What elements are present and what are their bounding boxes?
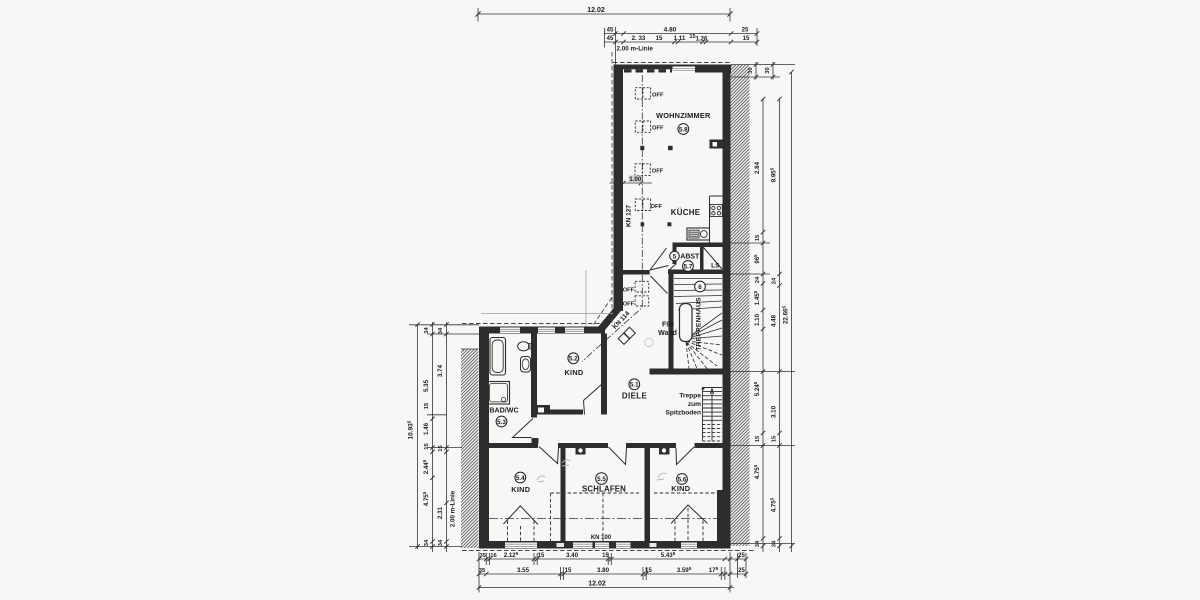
svg-text:SCHLAFEN: SCHLAFEN	[582, 484, 626, 493]
svg-text:3.40: 3.40	[566, 552, 579, 559]
svg-text:34: 34	[755, 540, 761, 547]
svg-text:3.80: 3.80	[597, 567, 610, 574]
svg-text:DIELE: DIELE	[622, 391, 647, 400]
svg-text:KN 100: KN 100	[591, 535, 612, 541]
svg-text:4.48: 4.48	[771, 314, 778, 327]
svg-text:1.46: 1.46	[423, 422, 430, 435]
svg-text:OFF: OFF	[651, 204, 663, 210]
svg-text:2.31: 2.31	[437, 506, 444, 519]
svg-text:35: 35	[479, 568, 486, 574]
svg-text:OFF: OFF	[652, 126, 664, 132]
svg-text:OFF: OFF	[623, 301, 635, 307]
svg-text:5.8: 5.8	[679, 126, 688, 133]
svg-text:15: 15	[424, 443, 430, 450]
svg-text:KÜCHE: KÜCHE	[671, 208, 701, 217]
svg-text:24: 24	[772, 277, 778, 284]
svg-text:34: 34	[424, 327, 430, 334]
svg-text:1.11: 1.11	[674, 35, 686, 42]
svg-text:Treppe: Treppe	[679, 393, 701, 400]
svg-text:2. 33: 2. 33	[632, 35, 646, 42]
svg-text:30: 30	[748, 67, 754, 73]
svg-text:Spitzboden: Spitzboden	[665, 410, 701, 417]
svg-text:F90: F90	[662, 321, 674, 328]
svg-text:1.10: 1.10	[754, 313, 761, 326]
svg-text:KN 127: KN 127	[626, 205, 633, 227]
svg-text:15: 15	[565, 568, 572, 574]
svg-text:15: 15	[424, 402, 430, 409]
svg-text:3.74: 3.74	[437, 364, 444, 377]
svg-text:15: 15	[755, 234, 761, 241]
svg-text:5.4: 5.4	[516, 475, 525, 482]
svg-text:5.35: 5.35	[423, 379, 430, 392]
svg-text:15: 15	[645, 568, 652, 574]
svg-text:45: 45	[607, 36, 614, 42]
svg-text:25: 25	[742, 28, 749, 34]
svg-text:5.2: 5.2	[569, 356, 578, 363]
svg-text:5: 5	[673, 253, 677, 260]
svg-text:15: 15	[538, 553, 545, 559]
svg-text:5.6: 5.6	[678, 476, 687, 483]
svg-text:35: 35	[479, 553, 486, 559]
svg-text:5.5: 5.5	[597, 476, 606, 483]
svg-text:4.80: 4.80	[664, 26, 677, 33]
svg-text:15: 15	[755, 435, 761, 442]
svg-text:OFF: OFF	[652, 92, 664, 98]
svg-text:5.3: 5.3	[497, 419, 506, 426]
svg-text:24: 24	[755, 276, 761, 283]
svg-text:KIND: KIND	[511, 485, 530, 494]
svg-text:Wand: Wand	[658, 330, 677, 337]
svg-text:KIND: KIND	[671, 484, 690, 493]
svg-text:TREPPENHAUS: TREPPENHAUS	[696, 297, 703, 351]
svg-text:ABST: ABST	[680, 253, 700, 260]
svg-text:5.1: 5.1	[630, 382, 639, 389]
svg-text:25: 25	[738, 568, 745, 574]
svg-text:2.00 m-Linie: 2.00 m-Linie	[450, 490, 457, 527]
svg-text:OFF: OFF	[652, 169, 664, 175]
svg-text:OFF: OFF	[623, 287, 635, 293]
svg-text:34: 34	[772, 540, 778, 547]
svg-text:15: 15	[438, 445, 444, 452]
svg-text:15: 15	[656, 36, 663, 42]
svg-text:12.02: 12.02	[587, 7, 605, 14]
svg-text:3.10: 3.10	[771, 405, 778, 418]
svg-text:15: 15	[743, 36, 750, 42]
svg-text:15: 15	[602, 553, 609, 559]
svg-text:30: 30	[765, 67, 771, 73]
svg-text:WOHNZIMMER: WOHNZIMMER	[656, 111, 711, 120]
svg-text:1.00: 1.00	[629, 176, 642, 183]
svg-text:34: 34	[438, 327, 444, 334]
svg-text:3.55: 3.55	[517, 567, 530, 574]
svg-text:25: 25	[738, 553, 745, 559]
svg-text:2.00 m-Linie: 2.00 m-Linie	[617, 45, 654, 52]
svg-text:16: 16	[490, 553, 497, 559]
svg-text:5.7: 5.7	[684, 263, 693, 270]
svg-text:KIND: KIND	[564, 368, 583, 377]
svg-text:BAD/WC: BAD/WC	[489, 406, 518, 414]
svg-text:45: 45	[607, 28, 614, 34]
svg-text:15: 15	[772, 435, 778, 442]
svg-text:34: 34	[424, 539, 430, 546]
svg-text:LS: LS	[711, 262, 720, 269]
svg-text:12.02: 12.02	[588, 580, 606, 587]
svg-text:zum: zum	[688, 401, 701, 408]
svg-text:2.84: 2.84	[754, 161, 761, 174]
svg-text:1.26: 1.26	[696, 36, 708, 42]
svg-text:6: 6	[698, 284, 702, 291]
svg-text:34: 34	[438, 539, 444, 546]
